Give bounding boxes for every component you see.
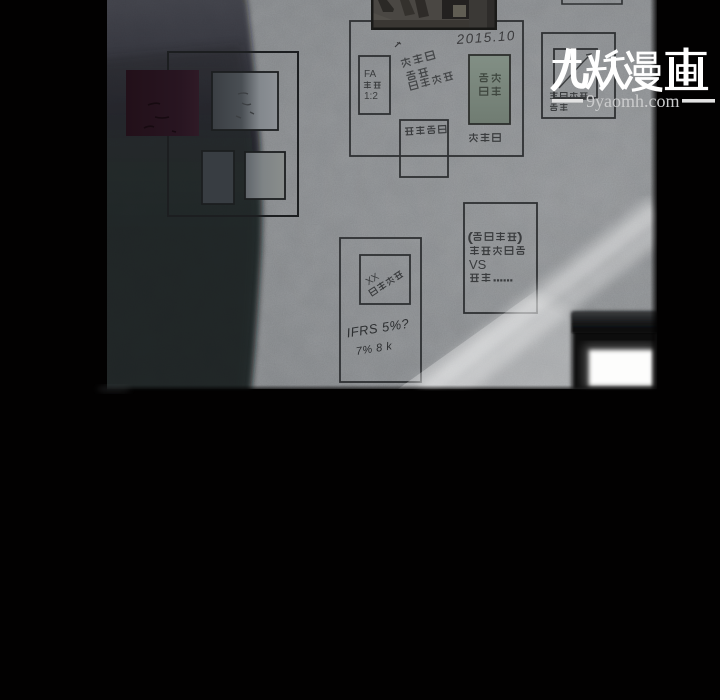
svg-text:(: ( xyxy=(468,230,472,244)
svg-text:): ) xyxy=(518,230,522,244)
svg-text:FA: FA xyxy=(364,69,377,80)
svg-text:......: ...... xyxy=(493,270,513,284)
svg-text:VS: VS xyxy=(469,257,487,272)
svg-text:1:2: 1:2 xyxy=(364,91,378,102)
svg-text:9yaomh.com: 9yaomh.com xyxy=(586,91,679,111)
